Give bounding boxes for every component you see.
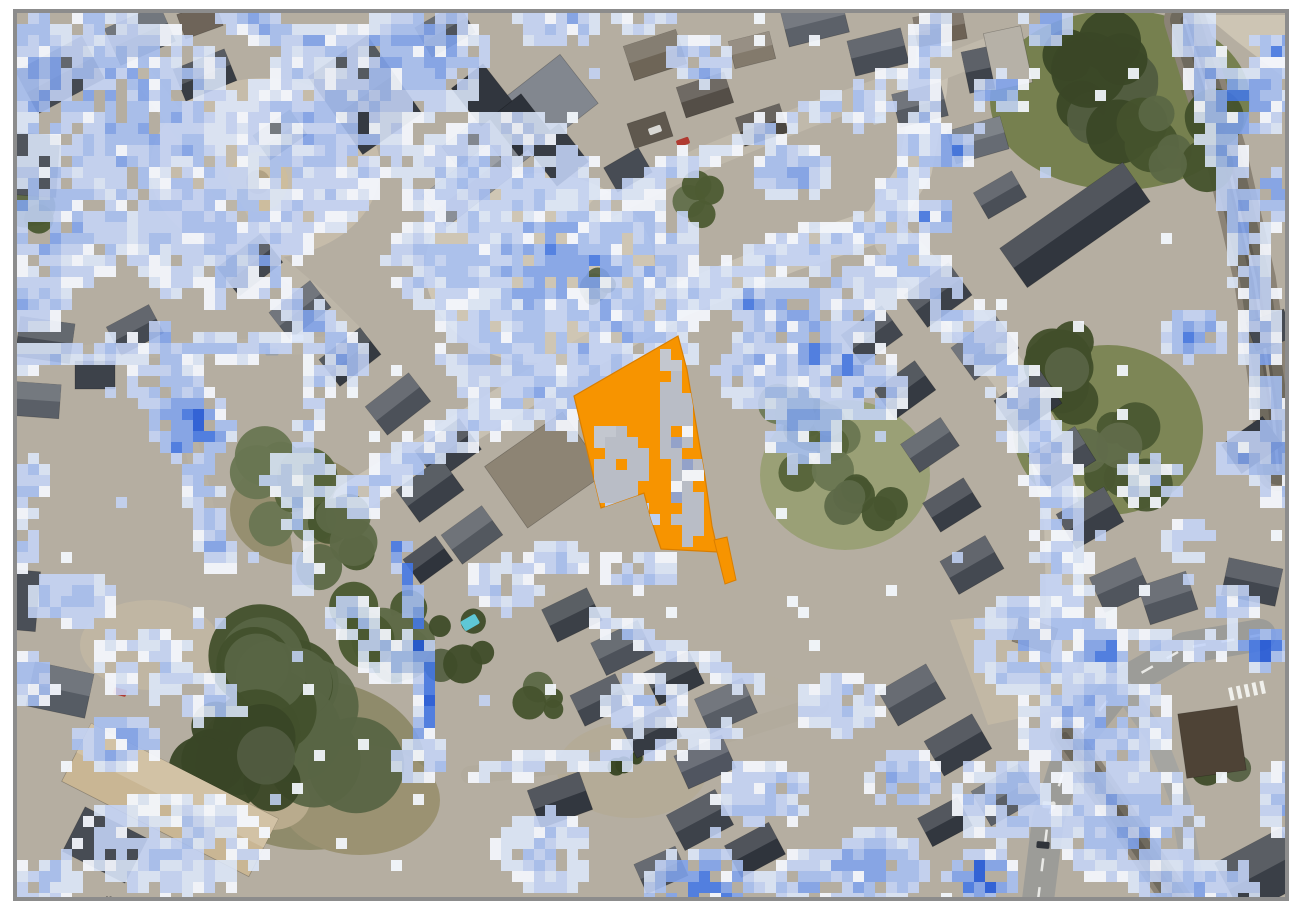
building [17, 381, 61, 418]
aerial-flood-map[interactable] [17, 13, 1285, 897]
flood-map-frame [13, 9, 1289, 901]
building [1178, 706, 1246, 779]
cropped-text-artifact: ¨ [104, 896, 144, 910]
car [1036, 841, 1050, 849]
building [75, 361, 115, 389]
